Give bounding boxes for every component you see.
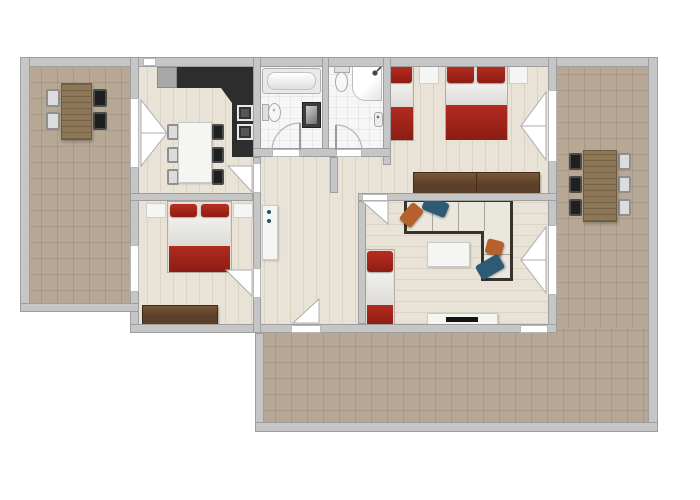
french-door-leaf	[141, 100, 167, 133]
french-door-leaf	[521, 260, 546, 293]
french-door-leaf	[521, 227, 546, 260]
door-leaf-hall-terrace	[293, 299, 319, 323]
french-door-leaf	[141, 133, 167, 166]
door-arc-bathroom	[272, 123, 300, 150]
door-arc-shower-room	[336, 125, 362, 150]
door-swing-overlay	[0, 0, 700, 500]
sink-tap-icon	[273, 109, 380, 119]
door-leaf-bedroom-left	[226, 270, 252, 296]
french-door-leaf	[521, 126, 546, 160]
door-leaf-living	[362, 201, 388, 224]
french-door-leaf	[521, 92, 546, 126]
floor-plan-canvas	[0, 0, 700, 500]
shower-head-icon	[372, 67, 381, 76]
door-leaf-kitchen	[228, 166, 252, 192]
